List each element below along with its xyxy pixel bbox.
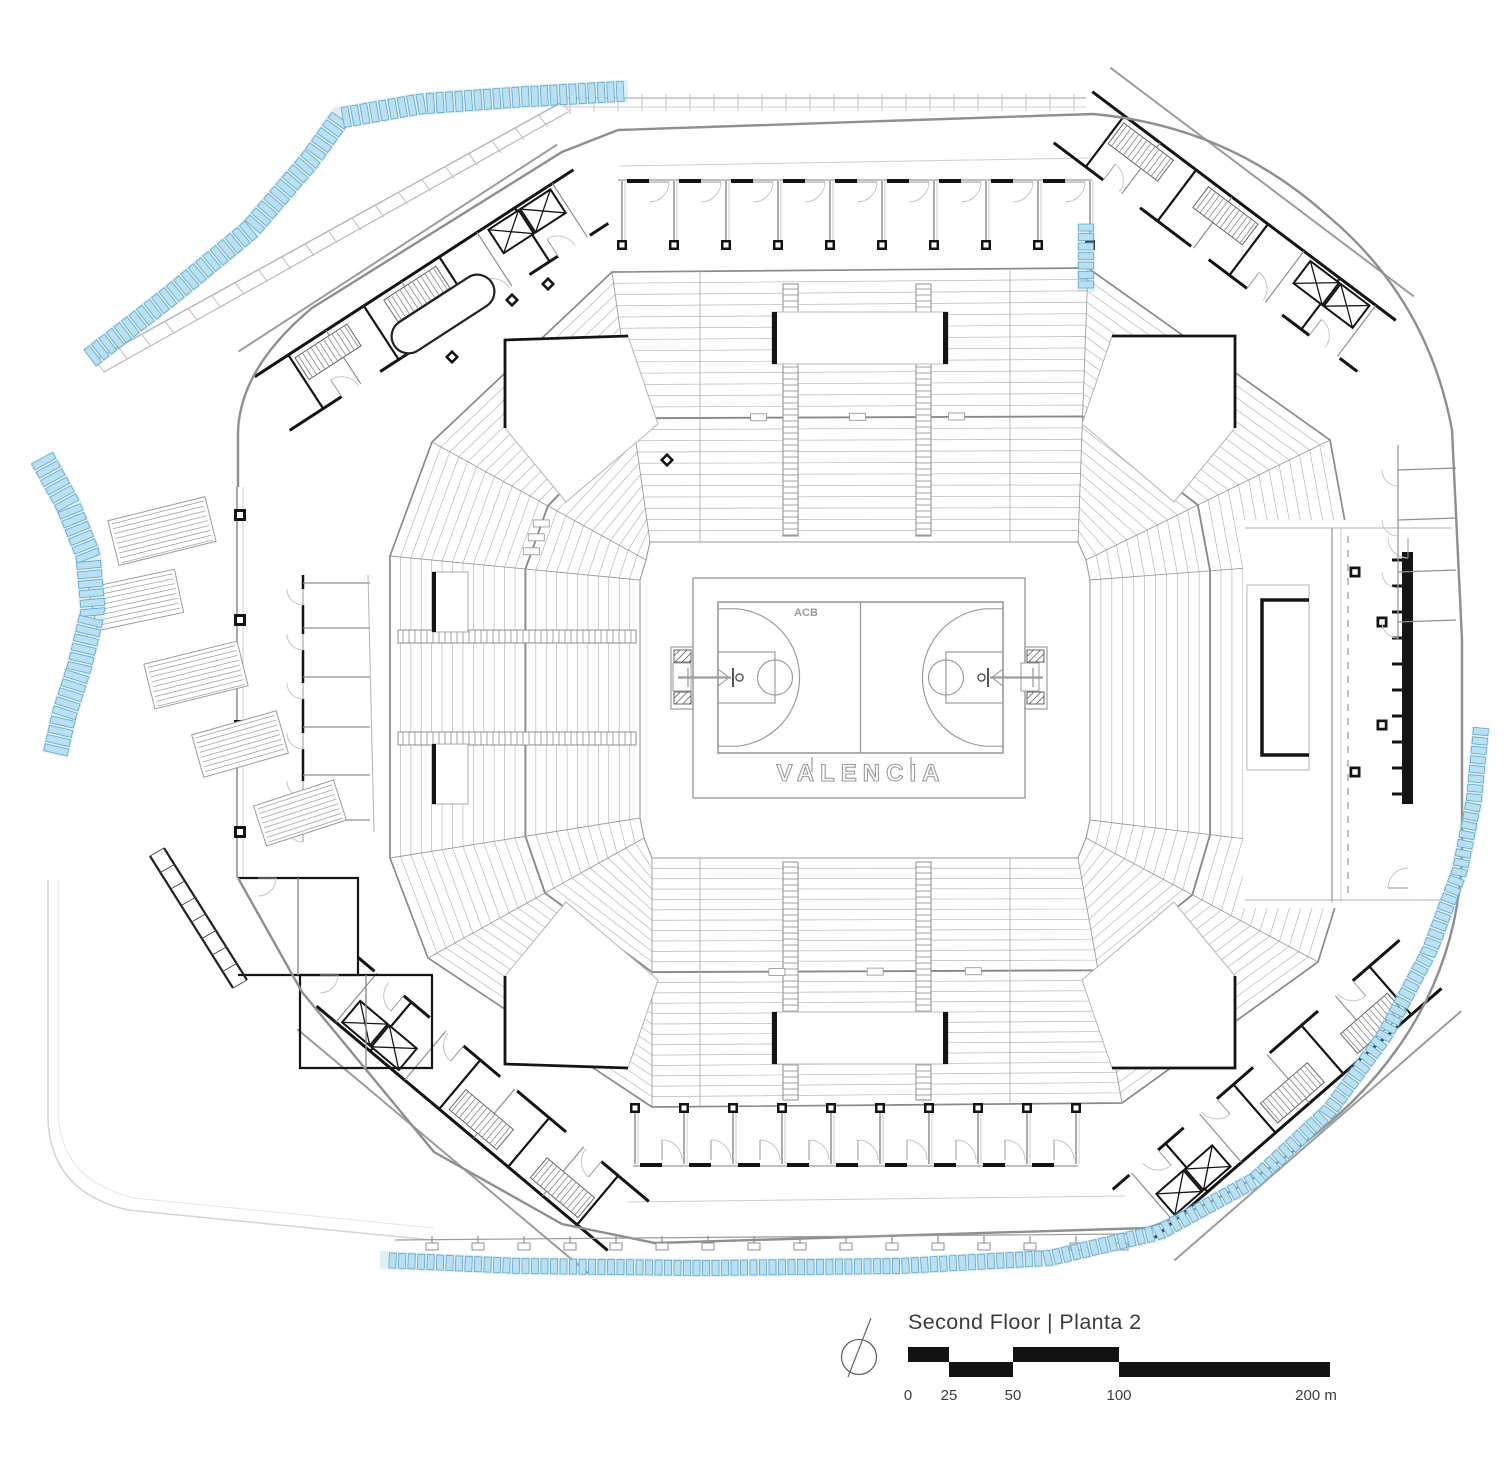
vomitory-box: [772, 1012, 948, 1064]
canopy-panel: [474, 90, 482, 110]
door-swing-icon: [907, 1140, 927, 1160]
seat-row: [640, 542, 1090, 858]
canopy-panel: [873, 1259, 880, 1274]
seat-row: [494, 382, 1243, 1003]
door-swing-icon: [1143, 1150, 1171, 1178]
door-swing-icon: [701, 182, 721, 202]
vomitory-box: [772, 312, 948, 364]
canopy-panel: [996, 1253, 1004, 1268]
corner-room-block: [1054, 68, 1414, 372]
louver-block: [108, 497, 216, 566]
suite-box: [528, 534, 544, 541]
door-swing-icon: [435, 1033, 463, 1061]
canopy-panel: [683, 1260, 690, 1275]
canopy-panel: [512, 1258, 520, 1273]
canopy-panel: [1472, 737, 1488, 745]
canopy-panel: [807, 1259, 814, 1274]
door-swing-icon: [1309, 319, 1337, 347]
canopy-panel: [426, 93, 434, 113]
louver-block: [192, 711, 289, 778]
door-swing-icon: [1013, 182, 1033, 202]
floor-plan-canvas: ACB VALENCIA Second Floor | Planta 2 0 2…: [0, 0, 1512, 1462]
canopy-panel: [883, 1259, 890, 1274]
canopy-panel: [465, 1256, 473, 1271]
canopy-panel: [788, 1260, 795, 1275]
canopy-panel: [560, 1259, 567, 1274]
canopy-panel: [455, 91, 463, 111]
canopy-panel: [484, 1257, 492, 1272]
canopy-panel: [550, 85, 558, 105]
anchor-pad: [1027, 692, 1044, 704]
canopy-panel: [740, 1260, 747, 1275]
door-swing-icon: [1202, 1099, 1230, 1127]
scale-bar: 0 25 50 100 200 m: [904, 1347, 1337, 1404]
canopy-panel: [1006, 1252, 1014, 1267]
canopy-panel: [1469, 765, 1485, 773]
canopy-panel: [569, 1259, 576, 1274]
court-acb-label: ACB: [794, 607, 818, 619]
canopy-panel: [427, 1255, 435, 1270]
canopy-panel: [987, 1253, 995, 1268]
canopy-panel: [1034, 1251, 1042, 1266]
canopy-panel: [797, 1259, 804, 1274]
canopy-panel: [398, 1253, 406, 1268]
basketball-court: ACB VALENCIA: [671, 578, 1047, 798]
canopy-panel: [626, 1260, 633, 1275]
canopy-panel: [503, 1258, 511, 1273]
canopy-panel: [977, 1254, 985, 1269]
door-swing-icon: [1103, 164, 1131, 192]
door-swing-icon: [547, 228, 575, 256]
canopy-panel: [455, 1256, 463, 1271]
canopy-panel: [597, 82, 605, 102]
anchor-pad: [674, 650, 691, 662]
canopy-panel: [436, 1255, 444, 1270]
door-swing-icon: [1338, 981, 1366, 1009]
canopy-panel: [445, 92, 453, 112]
canopy-panel: [579, 1259, 586, 1274]
suite-box: [949, 413, 965, 420]
canopy-panel: [1467, 784, 1483, 792]
canopy-panel: [464, 90, 472, 110]
suite-box: [867, 968, 883, 975]
hoop-right: [978, 674, 985, 681]
suite-box: [523, 548, 539, 555]
corner-opening: [1082, 902, 1235, 1068]
canopy-panel: [522, 1259, 529, 1274]
canopy-panel: [712, 1260, 719, 1275]
canopy-panel: [502, 88, 510, 108]
suite-box: [850, 413, 866, 420]
canopy-panel: [655, 1260, 662, 1275]
canopy-panel: [1079, 243, 1094, 250]
door-swing-icon: [1382, 470, 1398, 486]
door-swing-icon: [320, 975, 338, 993]
corner-opening: [505, 902, 658, 1068]
court-valencia-label: VALENCIA: [777, 760, 946, 787]
door-swing-icon: [809, 1140, 829, 1160]
canopy-panel: [1471, 746, 1487, 754]
canopy-panel: [541, 1259, 548, 1274]
stage-screen-wall: [1402, 552, 1413, 804]
door-swing-icon: [1065, 182, 1085, 202]
canopy-panel: [1015, 1252, 1023, 1267]
canopy-panel: [911, 1258, 919, 1273]
north-arrow-icon: [842, 1318, 877, 1377]
suite-box: [751, 414, 767, 421]
canopy-panel: [559, 84, 567, 104]
corner-opening: [505, 336, 658, 502]
canopy-panel: [816, 1259, 823, 1274]
canopy-panel: [845, 1259, 852, 1274]
scale-label-200: 200 m: [1295, 1387, 1337, 1404]
door-swing-icon: [760, 1140, 780, 1160]
canopy-panel: [835, 1259, 842, 1274]
canopy-panel: [493, 1257, 501, 1272]
canopy-panel: [446, 1255, 454, 1270]
canopy-panel: [493, 88, 501, 108]
anchor-pad: [674, 692, 691, 704]
canopy-panel: [598, 1259, 605, 1274]
canopy-panel: [693, 1260, 700, 1275]
canopy-panel: [1473, 727, 1489, 735]
door-swing-icon: [961, 182, 981, 202]
canopy-panel: [436, 92, 444, 112]
door-swing-icon: [1054, 1140, 1074, 1160]
corner-opening: [1082, 336, 1235, 502]
column-icon: [445, 350, 459, 364]
canopy-panel: [940, 1256, 948, 1271]
canopy-panel: [778, 1260, 785, 1275]
canopy-panel: [968, 1254, 976, 1269]
column-icon: [660, 453, 674, 467]
canopy-panel: [892, 1259, 899, 1274]
suite-box: [965, 968, 981, 975]
seat-row: [557, 451, 1178, 941]
door-swing-icon: [649, 182, 669, 202]
canopy-panel: [731, 1260, 738, 1275]
canopy-panel: [1470, 756, 1486, 764]
canopy-panel: [521, 87, 529, 107]
scale-label-25: 25: [941, 1387, 958, 1404]
seat-row: [578, 474, 1156, 921]
canopy-panel: [607, 82, 615, 102]
canopy-panel: [531, 86, 539, 106]
canopy-panel: [750, 1260, 757, 1275]
three-point-arc-right: [922, 609, 985, 746]
canopy-panel: [1079, 224, 1094, 231]
column-icon: [541, 277, 555, 291]
canopy-panel: [1079, 272, 1094, 279]
canopy-panel: [616, 81, 624, 101]
door-swing-icon: [753, 182, 773, 202]
canopy-panel: [769, 1260, 776, 1275]
canopy-panel: [1468, 775, 1484, 783]
canopy-panel: [1079, 234, 1094, 241]
door-swing-icon: [956, 1140, 976, 1160]
canopy-panel: [759, 1260, 766, 1275]
canopy-panel: [826, 1259, 833, 1274]
canopy-panel: [569, 84, 577, 104]
canopy-panel: [474, 1257, 482, 1272]
canopy-panel: [417, 1254, 425, 1269]
canopy-panel: [702, 1260, 709, 1275]
canopy-panel: [664, 1260, 671, 1275]
anchor-pad: [1027, 650, 1044, 662]
canopy-panel: [617, 1260, 624, 1275]
canopy-panel: [578, 83, 586, 103]
canopy-panel: [550, 1259, 557, 1274]
canopy-panel: [949, 1256, 957, 1271]
door-swing-icon: [805, 182, 825, 202]
scale-label-100: 100: [1106, 1387, 1131, 1404]
canopy-panel: [483, 89, 491, 109]
scale-label-50: 50: [1005, 1387, 1022, 1404]
scale-label-0: 0: [904, 1387, 912, 1404]
door-swing-icon: [258, 878, 276, 896]
column-icon: [505, 293, 519, 307]
canopy-panel: [921, 1257, 929, 1272]
canopy-panel: [540, 85, 548, 105]
canopy-panel: [1079, 281, 1094, 288]
canopy-panel: [389, 1253, 397, 1268]
door-swing-icon: [857, 182, 877, 202]
door-swing-icon: [858, 1140, 878, 1160]
canopy-panel: [645, 1260, 652, 1275]
hoop-left: [736, 674, 743, 681]
plan-title: Second Floor | Planta 2: [908, 1310, 1142, 1334]
canopy-panel: [854, 1259, 861, 1274]
door-swing-icon: [376, 983, 404, 1011]
door-swing-icon: [711, 1140, 731, 1160]
door-swing-icon: [1247, 272, 1275, 300]
canopy-panel: [1466, 793, 1482, 801]
three-point-arc-left: [737, 609, 800, 746]
canopy-panel: [1025, 1251, 1033, 1266]
floor-plan-sheet: ACB VALENCIA Second Floor | Planta 2 0 2…: [0, 0, 1512, 1462]
title-block: Second Floor | Planta 2 0 25 50 100 200 …: [842, 1310, 1337, 1404]
canopy-panel: [959, 1255, 967, 1270]
seat-row: [546, 439, 1188, 951]
canopy-panel: [512, 87, 520, 107]
door-swing-icon: [662, 1140, 682, 1160]
canopy-panel: [408, 1254, 416, 1269]
canopy-panel: [1079, 253, 1094, 260]
canopy-panel: [588, 83, 596, 103]
door-swing-icon: [573, 1149, 601, 1177]
canopy-panel: [607, 1259, 614, 1274]
canopy-panel: [721, 1260, 728, 1275]
canopy-panel: [902, 1258, 910, 1273]
louver-block: [144, 641, 248, 709]
door-swing-icon: [909, 182, 929, 202]
suite-box: [533, 520, 549, 527]
canopy-panel: [636, 1260, 643, 1275]
canopy-panel: [864, 1259, 871, 1274]
canopy-panel: [674, 1260, 681, 1275]
seat-row: [567, 462, 1166, 931]
canopy-panel: [588, 1259, 595, 1274]
door-swing-icon: [1005, 1140, 1025, 1160]
canopy-panel: [531, 1259, 538, 1274]
canopy-panel: [1079, 262, 1094, 269]
canopy-panel: [930, 1257, 938, 1272]
suite-box: [769, 969, 785, 976]
